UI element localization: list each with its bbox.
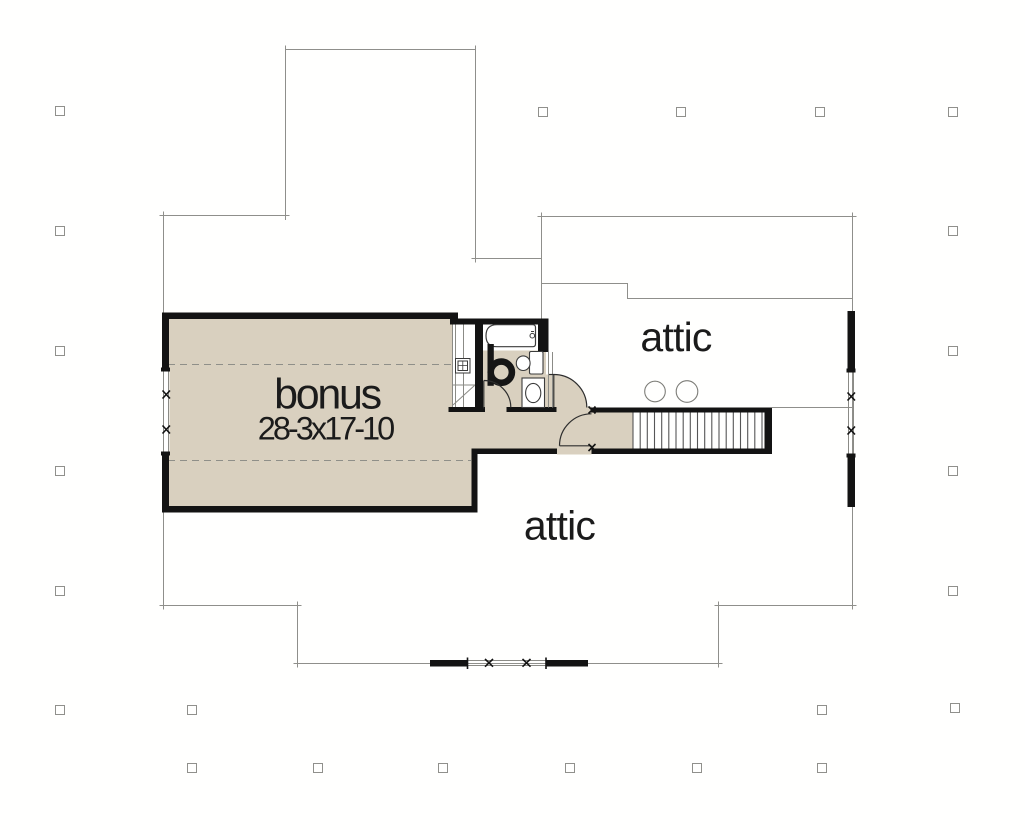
svg-text:28-3x17-10: 28-3x17-10 [258, 411, 394, 447]
svg-text:attic: attic [524, 502, 595, 548]
svg-text:attic: attic [640, 314, 711, 360]
